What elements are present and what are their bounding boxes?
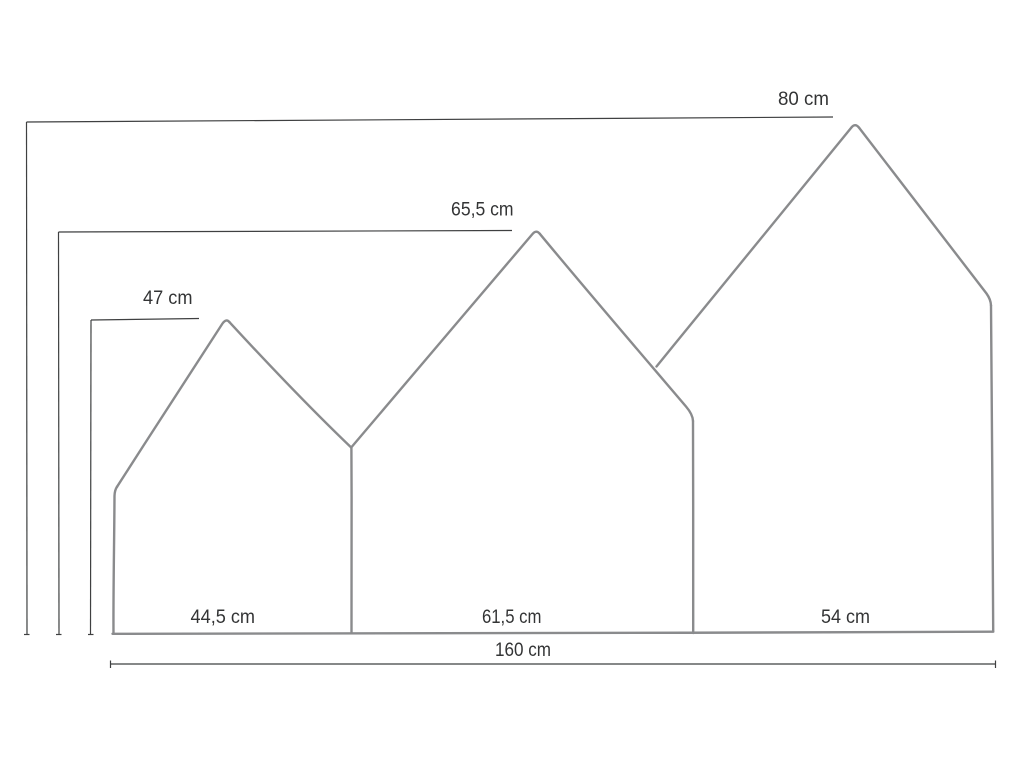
- svg-text:65,5 cm: 65,5 cm: [451, 200, 514, 221]
- svg-text:80 cm: 80 cm: [778, 89, 829, 110]
- svg-text:44,5 cm: 44,5 cm: [191, 607, 256, 628]
- svg-text:61,5 cm: 61,5 cm: [482, 607, 542, 628]
- svg-text:47 cm: 47 cm: [143, 288, 193, 309]
- svg-text:160 cm: 160 cm: [495, 640, 551, 661]
- svg-text:54 cm: 54 cm: [821, 607, 870, 628]
